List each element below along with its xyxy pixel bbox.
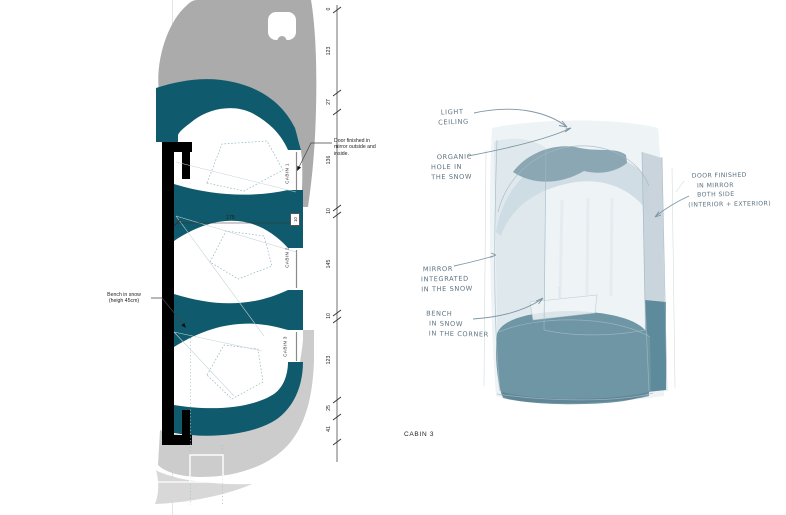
dim-label: 123 [326, 347, 332, 373]
fixture-icon [268, 12, 296, 40]
drawing-canvas: 0 123 27 136 10 145 10 123 25 41 175 10 … [0, 0, 786, 515]
dim-label: 145 [326, 251, 332, 277]
dimension-chain-vertical [333, 5, 341, 462]
dim-label: 123 [326, 38, 332, 64]
cabin-1-label: CABIN 1 [285, 159, 290, 189]
dim-wall-box: 10 [290, 213, 300, 226]
dim-label: 41 [326, 416, 332, 442]
bench-note: Bench in snow (heigh 45cm) [98, 292, 150, 305]
cabin-2-label: CABIN 2 [285, 243, 290, 273]
dim-wall-label: 10 [292, 217, 297, 222]
annotation-door-mirror: DOOR FINISHED IN MIRROR BOTH SIDE (INTER… [688, 170, 771, 210]
annotation-mirror: MIRROR INTEGRATED IN THE SNOW [421, 264, 473, 295]
fixture-outline-dotted [207, 141, 283, 399]
sketch-caption: CABIN 3 [404, 431, 434, 438]
annotation-organic-hole: ORGANIC HOLE IN THE SNOW [431, 152, 473, 183]
annotation-bench: BENCH IN SNOW IN THE CORNER [426, 308, 490, 339]
dim-label: 0 [326, 0, 332, 22]
annotation-light-ceiling: LIGHT CEILING [441, 107, 469, 128]
dim-width-label: 175 [226, 215, 235, 221]
plan-and-sketch-drawing [0, 0, 786, 515]
dim-label: 10 [326, 198, 332, 224]
dim-label: 136 [326, 147, 332, 173]
door-note: Door finished in mirror outside and insi… [334, 138, 376, 157]
dim-label: 27 [326, 89, 332, 115]
dim-label: 10 [326, 303, 332, 329]
fixture-notch-icon [278, 36, 287, 45]
snow-wall-pillar-1 [174, 184, 303, 248]
cabin-3-label: CABIN 3 [283, 332, 288, 362]
